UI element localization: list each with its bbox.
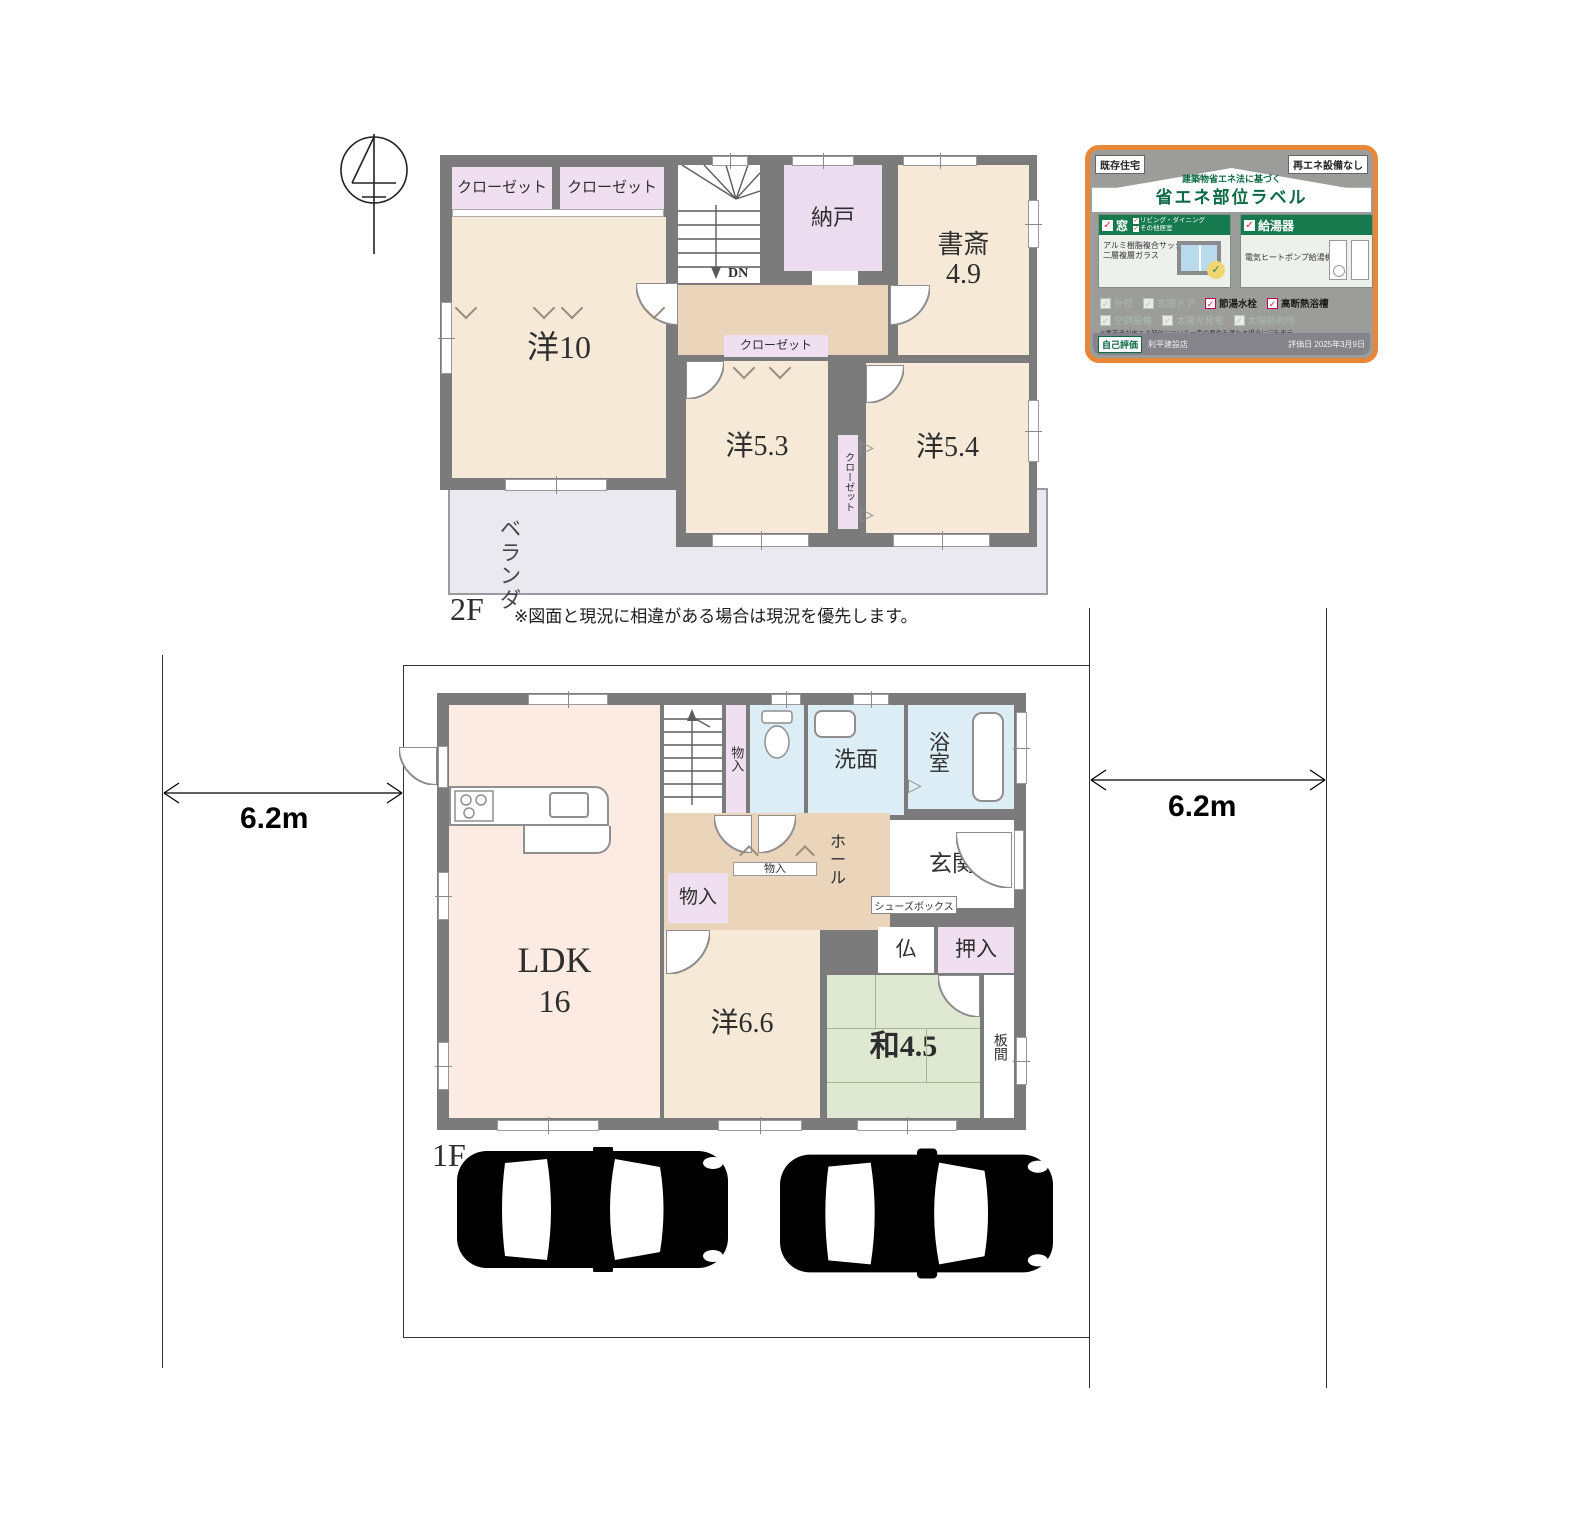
tank-icon — [1351, 240, 1369, 280]
card-title: 省エネ部位ラベル — [1090, 183, 1373, 208]
boundary-line-right-inner — [1089, 608, 1090, 1388]
door-arc — [890, 285, 930, 325]
eval-date: 評価日 2025年3月9日 — [1288, 339, 1365, 350]
window — [438, 1042, 449, 1090]
window-sub1: リビング・ダイニング — [1140, 217, 1205, 224]
chk-danetsu: ✓高断熱浴槽 — [1267, 296, 1329, 310]
closet-d: クローゼット — [838, 435, 858, 529]
window — [1016, 1037, 1027, 1085]
monoiri-left: 物入 — [668, 873, 728, 923]
window — [505, 479, 607, 491]
door-arc — [758, 815, 796, 853]
side-door-leaf — [438, 746, 448, 788]
energy-label-card: 既存住宅 再エネ設備なし 建築物省エネ法に基づく 省エネ部位ラベル ✓ 窓 ✓リ… — [1085, 145, 1378, 363]
dimension-arrow-right — [1090, 768, 1326, 792]
car-silhouette — [455, 1147, 730, 1272]
door-arc — [686, 361, 724, 399]
boundary-line-right-outer — [1326, 608, 1327, 1388]
monoiri-stair-label: 物入 — [729, 746, 744, 772]
boundary-line-left — [162, 655, 163, 1368]
room-yo10: 洋10 — [452, 217, 666, 478]
room-yo66-label: 洋6.6 — [710, 1008, 773, 1039]
room-yo10-label: 洋10 — [527, 330, 591, 366]
heater-section: ✓ 給湯器 電気ヒートポンプ給湯機 — [1240, 214, 1373, 288]
nando: 納戸 — [784, 165, 882, 271]
dimension-left-label: 6.2m — [240, 802, 308, 836]
bath-label: 浴室 — [926, 731, 950, 773]
hall-label: ホール — [830, 834, 846, 888]
window — [792, 156, 854, 166]
stairs-1f — [664, 705, 722, 813]
check-icon: ✓ — [1133, 226, 1139, 232]
site-line-top — [403, 665, 1089, 666]
closet-b: クローゼット — [560, 167, 664, 209]
door-arc — [866, 365, 904, 403]
closet-front-sill — [452, 209, 664, 217]
room-yo53-label: 洋5.3 — [725, 431, 788, 462]
chk-genkan-door: ✓玄関ドア — [1143, 296, 1195, 310]
chk-gaiheki: ✓外壁 — [1100, 296, 1133, 310]
stove-icon — [454, 790, 494, 822]
closet-door-marker: ▷ — [860, 505, 874, 523]
oshiire-label: 押入 — [955, 938, 997, 962]
veranda-label: ベランダ — [500, 518, 527, 612]
side-door-arc — [399, 747, 437, 785]
window — [1028, 400, 1039, 462]
window — [718, 1120, 802, 1131]
room-shosai: 書斎4.9 — [898, 165, 1029, 355]
toilet-icon — [758, 710, 796, 762]
self-eval-badge: 自己評価 — [1098, 336, 1142, 353]
room-ldk-label: LDK16 — [449, 940, 660, 1021]
shoes-box: シューズボックス — [871, 896, 957, 914]
oshiire: 押入 — [938, 927, 1014, 973]
chk-kucho: ✓空調設備 — [1100, 313, 1152, 327]
floor2-caption: 2F — [450, 592, 484, 628]
closet-c-label: クローゼット — [740, 339, 812, 352]
room-wa45-label: 和4.5 — [870, 1030, 938, 1064]
check-icon: ✓ — [1102, 220, 1113, 231]
window — [441, 302, 452, 374]
window — [853, 694, 889, 705]
front-door-leaf — [1014, 830, 1024, 890]
window-section-title: 窓 — [1116, 217, 1128, 234]
window — [438, 872, 449, 920]
closet-d-label: クローゼット — [842, 452, 853, 512]
sink-basin-icon — [814, 710, 856, 738]
nando-label: 納戸 — [811, 206, 855, 231]
window-sub2: その他居室 — [1140, 225, 1173, 232]
window-section: ✓ 窓 ✓リビング・ダイニング ✓その他居室 アルミ樹脂複合サッシ二層複層ガラス… — [1098, 214, 1231, 288]
check-icon: ✓ — [1244, 220, 1255, 231]
room-ldk — [449, 705, 660, 1118]
window-desc: アルミ樹脂複合サッシ二層複層ガラス — [1103, 241, 1183, 262]
tatami-line — [827, 1028, 980, 1029]
check-icon: ✓ — [1133, 218, 1139, 224]
folding-door-marker: ▷ — [908, 776, 922, 794]
door-arc — [938, 975, 980, 1017]
window — [1016, 712, 1027, 784]
window — [497, 1120, 599, 1131]
site-line-bottom — [403, 1337, 1089, 1338]
chk-taiyoko: ✓太陽光発電 — [1162, 313, 1224, 327]
kitchen-counter-return — [523, 826, 611, 854]
door-arc — [666, 930, 710, 974]
stairs-dn-label: DN — [728, 266, 748, 282]
window — [1028, 200, 1039, 248]
tatami-line — [926, 1028, 927, 1082]
heatpump-icon — [1329, 240, 1347, 280]
window — [893, 534, 990, 547]
monoiri-wall-label: 物入 — [764, 863, 786, 875]
chk-setsuyu: ✓節湯水栓 — [1205, 296, 1257, 310]
company-name: 利平建設店 — [1148, 339, 1188, 350]
tatami-line — [827, 1082, 980, 1083]
window — [771, 694, 801, 705]
closet-b-label: クローゼット — [567, 180, 657, 197]
heater-section-title: 給湯器 — [1258, 217, 1294, 234]
disclaimer-text: ※図面と現況に相違がある場合は現況を優先します。 — [514, 602, 918, 627]
bathtub-icon — [972, 712, 1004, 802]
card-footer: 自己評価 利平建設店 評価日 2025年3月9日 — [1093, 333, 1370, 355]
tatami-line — [875, 975, 876, 1028]
monoiri-stair: 物入 — [726, 705, 746, 813]
chk-taiyonetsu: ✓太陽熱利用 — [1234, 313, 1296, 327]
room-shosai-label: 書斎4.9 — [937, 230, 989, 290]
shoes-box-label: シューズボックス — [874, 898, 953, 913]
senmen-label: 洗面 — [834, 748, 878, 773]
closet-a-label: クローゼット — [457, 180, 547, 197]
itama-label: 板間 — [991, 1033, 1007, 1061]
butsuma: 仏 — [878, 927, 934, 973]
monoiri-left-label: 物入 — [679, 887, 717, 908]
itama: 板間 — [984, 975, 1014, 1118]
window — [903, 156, 977, 166]
closet-a: クローゼット — [452, 167, 552, 209]
window — [857, 1120, 957, 1131]
room-yo54-label: 洋5.4 — [916, 432, 979, 463]
butsuma-label: 仏 — [896, 938, 917, 962]
sink-icon — [549, 792, 589, 818]
floorplan-page: クローゼット クローゼット 洋10 DN 納戸 — [0, 0, 1584, 1534]
eco-badge-icon: ✓ — [1207, 261, 1225, 279]
heater-desc: 電気ヒートポンプ給湯機 — [1245, 253, 1333, 263]
front-door-arc — [956, 832, 1012, 888]
window — [712, 156, 748, 166]
car-silhouette — [778, 1147, 1055, 1280]
compass-icon — [336, 126, 416, 266]
closet-door-marker: ▷ — [860, 438, 874, 456]
nando-opening — [812, 271, 858, 285]
window — [712, 534, 809, 547]
window — [528, 694, 608, 705]
dimension-right-label: 6.2m — [1168, 790, 1236, 824]
closet-c: クローゼット — [724, 335, 828, 357]
